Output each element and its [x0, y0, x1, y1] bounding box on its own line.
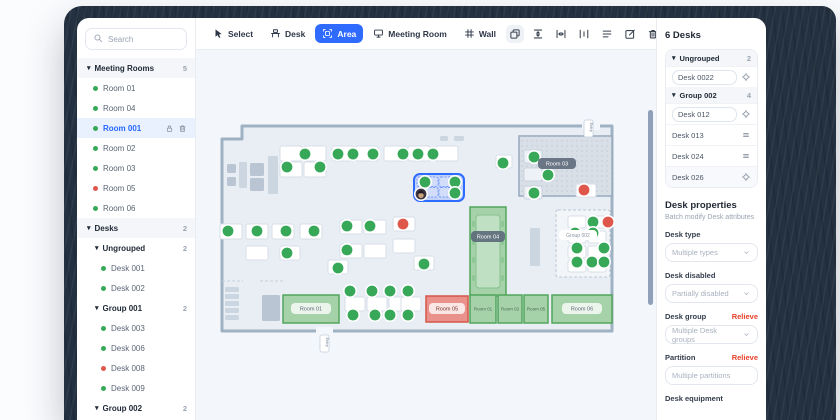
- desk-group-header-ungrouped[interactable]: ▾Ungrouped2: [666, 50, 757, 66]
- row-label: Room 04: [103, 104, 135, 113]
- sidebar-item-desk-009[interactable]: Desk 009: [77, 378, 195, 398]
- canvas-scrollbar[interactable]: [648, 110, 653, 305]
- sidebar-item-desk-003[interactable]: Desk 003: [77, 318, 195, 338]
- tool-label: Area: [337, 29, 356, 39]
- tool-label: Select: [228, 29, 253, 39]
- row-label: Desks: [95, 224, 119, 233]
- caret-down-icon: ▾: [95, 405, 99, 412]
- furniture: [268, 156, 278, 194]
- field-desk-disabled: Desk disabledPartially disabled: [665, 271, 758, 303]
- caret-down-icon: ▾: [95, 305, 99, 312]
- desk-seat-available[interactable]: [222, 225, 234, 237]
- row-label: Desk 001: [111, 264, 145, 273]
- desk-seat-available[interactable]: [449, 187, 461, 199]
- caret-down-icon: ▾: [95, 245, 99, 252]
- furniture: [225, 301, 239, 306]
- room-label: Room 05: [527, 307, 546, 312]
- desk-seat-available[interactable]: [598, 256, 610, 268]
- row-count: 2: [179, 404, 187, 413]
- field-label: Partition: [665, 353, 695, 362]
- pointer-icon: [213, 28, 224, 39]
- room-label: Room 01: [291, 303, 331, 314]
- selected-desks-list: ▾Ungrouped2Desk 0022▾Group 0024Desk 012D…: [665, 49, 758, 188]
- desk-seat-available[interactable]: [281, 247, 293, 259]
- desk-seat-available[interactable]: [384, 309, 396, 321]
- chair: [501, 221, 504, 227]
- desk-name: Desk 026: [672, 173, 737, 182]
- desk-row-desk-0022[interactable]: Desk 0022: [666, 66, 757, 87]
- row-label: Room 02: [103, 144, 135, 153]
- action-align-lines-icon[interactable]: [598, 25, 616, 43]
- properties-fields: Desk typeMultiple typesDesk disabledPart…: [665, 230, 758, 403]
- sidebar-item-room-05[interactable]: Room 05: [77, 178, 195, 198]
- furniture: [454, 136, 464, 141]
- desk-name: Desk 012: [678, 110, 731, 119]
- desk-seat-available[interactable]: [598, 242, 610, 254]
- drag-icon: [741, 151, 751, 161]
- status-dot-green: [93, 106, 98, 111]
- desk-seat-available[interactable]: [281, 161, 293, 173]
- sidebar-item-room-04[interactable]: Room 04: [77, 98, 195, 118]
- desk-properties-section: Desk properties Batch modify Desk attrib…: [665, 200, 758, 403]
- selection-count-title: 6 Desks: [665, 30, 758, 41]
- distribute-vertical-icon: [532, 28, 544, 40]
- chair: [501, 275, 504, 281]
- target-icon[interactable]: [741, 72, 751, 82]
- desk-seat-available[interactable]: [419, 176, 431, 188]
- tool-meeting-room[interactable]: Meeting Room: [366, 24, 454, 43]
- sidebar-group-group-002[interactable]: ▾Group 0022: [77, 398, 195, 418]
- action-distribute-vertical-icon[interactable]: [529, 25, 547, 43]
- svg-text:Room 06: Room 06: [571, 307, 593, 313]
- desk-row-desk-024[interactable]: Desk 024: [666, 145, 757, 166]
- app-window: Search ▾Meeting Rooms5Room 01Room 04Room…: [77, 18, 766, 420]
- chair: [501, 257, 504, 263]
- svg-text:Room 03: Room 03: [546, 162, 568, 168]
- desk[interactable]: [568, 216, 586, 228]
- properties-title: Desk properties: [665, 200, 758, 211]
- room-label: Room 05: [429, 303, 465, 314]
- door-gap: [316, 327, 333, 335]
- sidebar-group-ungrouped[interactable]: ▾Ungrouped2: [77, 238, 195, 258]
- desk-seat-available[interactable]: [332, 148, 344, 160]
- desk-seat-available[interactable]: [528, 187, 540, 199]
- drag-icon[interactable]: [741, 130, 751, 140]
- sidebar-item-room-06[interactable]: Room 06: [77, 198, 195, 218]
- toolbar-actions: [506, 25, 662, 43]
- search-placeholder: Search: [108, 35, 133, 44]
- sidebar-tree: ▾Meeting Rooms5Room 01Room 04Room 001Roo…: [77, 58, 195, 418]
- sidebar-item-desk-006[interactable]: Desk 006: [77, 338, 195, 358]
- search-icon: [93, 33, 103, 45]
- drag-icon: [741, 130, 751, 140]
- desk-seat-available[interactable]: [397, 148, 409, 160]
- status-dot-green: [93, 126, 98, 131]
- group-label: Group 002: [680, 91, 717, 100]
- conference-table: [476, 215, 500, 288]
- sidebar: Search ▾Meeting Rooms5Room 01Room 04Room…: [77, 18, 196, 420]
- spacing-icon: [578, 28, 590, 40]
- edit-icon: [624, 28, 636, 40]
- desk-seat-available[interactable]: [571, 242, 583, 254]
- action-distribute-horizontal-icon[interactable]: [552, 25, 570, 43]
- row-count: 2: [179, 224, 187, 233]
- desk-seat-available[interactable]: [402, 285, 414, 297]
- row-label: Desk 009: [111, 384, 145, 393]
- tool-label: Meeting Room: [388, 29, 447, 39]
- field-select[interactable]: Multiple Desk groups: [665, 325, 758, 344]
- align-lines-icon: [601, 28, 613, 40]
- field-placeholder: Multiple partitions: [672, 371, 730, 380]
- floorplan-svg: Room 03Room 04Room 01Room 05Room 01Room …: [196, 50, 656, 420]
- desk-row-desk-013[interactable]: Desk 013: [666, 124, 757, 145]
- desk-name-input[interactable]: Desk 0022: [672, 70, 737, 85]
- furniture: [225, 315, 239, 320]
- desk-seat-available[interactable]: [427, 148, 439, 160]
- copy-icon: [509, 28, 521, 40]
- desk-name-input[interactable]: Desk 012: [672, 107, 737, 122]
- desk-seat-available[interactable]: [367, 148, 379, 160]
- sidebar-item-room-02[interactable]: Room 02: [77, 138, 195, 158]
- tool-select[interactable]: Select: [206, 24, 260, 43]
- toolbar-tools: SelectDeskAreaMeeting RoomWall: [206, 24, 503, 43]
- caret-down-icon: ▾: [672, 92, 676, 99]
- furniture: [225, 287, 239, 292]
- furniture: [250, 163, 264, 176]
- door-tag: Entry: [320, 335, 330, 352]
- row-label: Room 06: [103, 204, 135, 213]
- desk-seat-disabled[interactable]: [578, 184, 590, 196]
- door-tag: Entry: [584, 120, 594, 137]
- row-label: Desk 006: [111, 344, 145, 353]
- lock-icon: [165, 124, 174, 133]
- target-icon[interactable]: [741, 172, 751, 182]
- desk-name: Desk 024: [672, 152, 737, 161]
- status-dot-red: [101, 366, 106, 371]
- desk-seat-available[interactable]: [402, 309, 414, 321]
- target-icon: [741, 172, 751, 182]
- furniture: [225, 294, 239, 299]
- tool-desk[interactable]: Desk: [263, 24, 312, 43]
- furniture: [239, 162, 247, 188]
- svg-text:Room 05: Room 05: [436, 307, 458, 313]
- chair: [472, 275, 475, 281]
- desk-seat-available[interactable]: [366, 285, 378, 297]
- svg-text:Room 04: Room 04: [477, 235, 499, 241]
- caret-down-icon: ▾: [672, 55, 676, 62]
- row-label: Desk 008: [111, 364, 145, 373]
- desk-seat-disabled[interactable]: [602, 216, 614, 228]
- row-label: Meeting Rooms: [95, 64, 155, 73]
- tool-area[interactable]: Area: [315, 24, 363, 43]
- row-label: Group 001: [103, 304, 143, 313]
- field-label: Desk equipment: [665, 394, 723, 403]
- search-icon: [93, 33, 103, 43]
- desk-seat-available[interactable]: [341, 244, 353, 256]
- row-label: Room 05: [103, 184, 135, 193]
- desk-seat-available[interactable]: [341, 220, 353, 232]
- tool-label: Desk: [285, 29, 305, 39]
- desk-seat-available[interactable]: [571, 256, 583, 268]
- desk-name: Desk 0022: [678, 73, 731, 82]
- field-placeholder: Multiple types: [672, 248, 718, 257]
- desk-seat-available[interactable]: [347, 148, 359, 160]
- sidebar-item-desk-008[interactable]: Desk 008: [77, 358, 195, 378]
- desk-seat-available[interactable]: [384, 285, 396, 297]
- row-label: Room 03: [103, 164, 135, 173]
- desk-seat-available[interactable]: [332, 262, 344, 274]
- sidebar-item-desk-002[interactable]: Desk 002: [77, 278, 195, 298]
- desk-seat-available[interactable]: [347, 309, 359, 321]
- furniture: [262, 295, 280, 321]
- action-spacing-icon[interactable]: [575, 25, 593, 43]
- status-dot-red: [93, 186, 98, 191]
- row-count: 2: [179, 244, 187, 253]
- desk-seat-available[interactable]: [586, 256, 598, 268]
- trash-icon: [178, 124, 187, 133]
- sidebar-group-group-001[interactable]: ▾Group 0012: [77, 298, 195, 318]
- row-count: 5: [179, 64, 187, 73]
- relieve-link[interactable]: Relieve: [732, 312, 758, 321]
- room-label: Room 06: [562, 303, 602, 314]
- caret-down-icon: ▾: [87, 225, 91, 232]
- row-count: 2: [179, 304, 187, 313]
- desk-name: Desk 013: [672, 131, 737, 140]
- svg-text:Entry: Entry: [589, 123, 594, 132]
- screen-icon: [373, 28, 384, 39]
- search-input[interactable]: Search: [85, 28, 187, 50]
- furniture: [225, 308, 239, 313]
- desk[interactable]: [364, 244, 386, 258]
- sidebar-item-room-01[interactable]: Room 01: [77, 78, 195, 98]
- caret-down-icon: ▾: [87, 65, 91, 72]
- field-desk-type: Desk typeMultiple types: [665, 230, 758, 262]
- target-icon[interactable]: [741, 109, 751, 119]
- furniture: [227, 177, 236, 186]
- area-icon: [322, 28, 333, 39]
- lock-icon[interactable]: [165, 124, 174, 133]
- relieve-link[interactable]: Relieve: [732, 353, 758, 362]
- tool-wall[interactable]: Wall: [457, 24, 503, 43]
- room-label: Room 03: [538, 158, 576, 169]
- field-select[interactable]: Multiple types: [665, 243, 758, 262]
- status-dot-green: [93, 146, 98, 151]
- sidebar-group-meeting-rooms[interactable]: ▾Meeting Rooms5: [77, 58, 195, 78]
- wall-icon: [464, 28, 475, 39]
- sidebar-item-room-03[interactable]: Room 03: [77, 158, 195, 178]
- status-dot-green: [101, 286, 106, 291]
- desk-seat-available[interactable]: [280, 225, 292, 237]
- field-input[interactable]: Multiple partitions: [665, 366, 758, 385]
- desk-seat-available[interactable]: [251, 225, 263, 237]
- status-dot-green: [101, 266, 106, 271]
- row-label: Group 002: [103, 404, 143, 413]
- furniture: [530, 228, 540, 266]
- furniture: [227, 164, 236, 173]
- user-avatar[interactable]: [415, 188, 427, 200]
- row-label: Desk 002: [111, 284, 145, 293]
- desk-seat-disabled[interactable]: [397, 218, 409, 230]
- desk-seat-available[interactable]: [369, 309, 381, 321]
- sidebar-group-desks[interactable]: ▾Desks2: [77, 218, 195, 238]
- desk-row-desk-012[interactable]: Desk 012: [666, 103, 757, 124]
- desk-seat-available[interactable]: [412, 148, 424, 160]
- chair: [472, 221, 475, 227]
- desk-seat-available[interactable]: [542, 169, 554, 181]
- desk-seat-available[interactable]: [418, 258, 430, 270]
- field-desk-equipment: Desk equipment: [665, 394, 758, 403]
- desk-seat-available[interactable]: [299, 148, 311, 160]
- field-placeholder: Multiple Desk groups: [672, 326, 742, 344]
- field-select[interactable]: Partially disabled: [665, 284, 758, 303]
- desk-seat-available[interactable]: [364, 220, 376, 232]
- furniture: [440, 136, 448, 141]
- action-edit-icon[interactable]: [621, 25, 639, 43]
- drag-icon[interactable]: [741, 151, 751, 161]
- desk-icon: [270, 28, 281, 39]
- room-label: Room 02: [501, 307, 520, 312]
- desk[interactable]: [246, 246, 268, 260]
- status-dot-green: [93, 166, 98, 171]
- status-dot-green: [93, 86, 98, 91]
- svg-text:Group 002: Group 002: [566, 233, 590, 239]
- desk[interactable]: [524, 168, 542, 181]
- field-label: Desk group: [665, 312, 706, 321]
- status-dot-green: [101, 346, 106, 351]
- room-label: Room 01: [474, 307, 493, 312]
- chair: [472, 257, 475, 263]
- sidebar-item-room-001[interactable]: Room 001: [77, 118, 195, 138]
- group-count: 4: [747, 91, 751, 100]
- right-panel: 6 Desks ▾Ungrouped2Desk 0022▾Group 0024D…: [656, 18, 766, 420]
- group-count: 2: [747, 54, 751, 63]
- status-dot-green: [101, 326, 106, 331]
- svg-text:Entry: Entry: [325, 338, 330, 347]
- field-label: Desk disabled: [665, 271, 715, 280]
- room-label: Room 04: [471, 231, 505, 242]
- field-label: Desk type: [665, 230, 700, 239]
- target-icon: [741, 72, 751, 82]
- desk[interactable]: [393, 239, 415, 253]
- furniture: [250, 178, 264, 191]
- floorplan-canvas[interactable]: Room 03Room 04Room 01Room 05Room 01Room …: [196, 50, 656, 420]
- field-desk-group: Desk groupRelieveMultiple Desk groups: [665, 312, 758, 344]
- chevron-down-icon: [742, 330, 751, 339]
- distribute-horizontal-icon: [555, 28, 567, 40]
- row-label: Room 01: [103, 84, 135, 93]
- desk-seat-available[interactable]: [497, 157, 509, 169]
- toolbar: SelectDeskAreaMeeting RoomWall: [196, 18, 656, 50]
- row-label: Room 001: [103, 124, 141, 133]
- field-partition: PartitionRelieveMultiple partitions: [665, 353, 758, 385]
- desk-group-header-group-002[interactable]: ▾Group 0024: [666, 87, 757, 103]
- chevron-down-icon: [742, 289, 751, 298]
- row-label: Ungrouped: [103, 244, 146, 253]
- chevron-down-icon: [742, 248, 751, 257]
- status-dot-green: [101, 386, 106, 391]
- desk-row-desk-026[interactable]: Desk 026: [666, 166, 757, 187]
- desk-seat-available[interactable]: [314, 161, 326, 173]
- field-placeholder: Partially disabled: [672, 289, 729, 298]
- status-dot-green: [93, 206, 98, 211]
- row-label: Desk 003: [111, 324, 145, 333]
- action-copy-icon[interactable]: [506, 25, 524, 43]
- desk-seat-available[interactable]: [308, 225, 320, 237]
- page: Search ▾Meeting Rooms5Room 01Room 04Room…: [0, 0, 840, 420]
- group-area-label: Group 002: [559, 230, 597, 240]
- target-icon: [741, 109, 751, 119]
- main-area: SelectDeskAreaMeeting RoomWall Room 03Ro…: [196, 18, 656, 420]
- desk-seat-available[interactable]: [344, 285, 356, 297]
- tool-label: Wall: [479, 29, 496, 39]
- svg-text:Room 01: Room 01: [300, 307, 322, 313]
- sidebar-item-desk-001[interactable]: Desk 001: [77, 258, 195, 278]
- properties-subtitle: Batch modify Desk attributes: [665, 214, 758, 221]
- group-label: Ungrouped: [680, 54, 720, 63]
- trash-icon[interactable]: [178, 124, 187, 133]
